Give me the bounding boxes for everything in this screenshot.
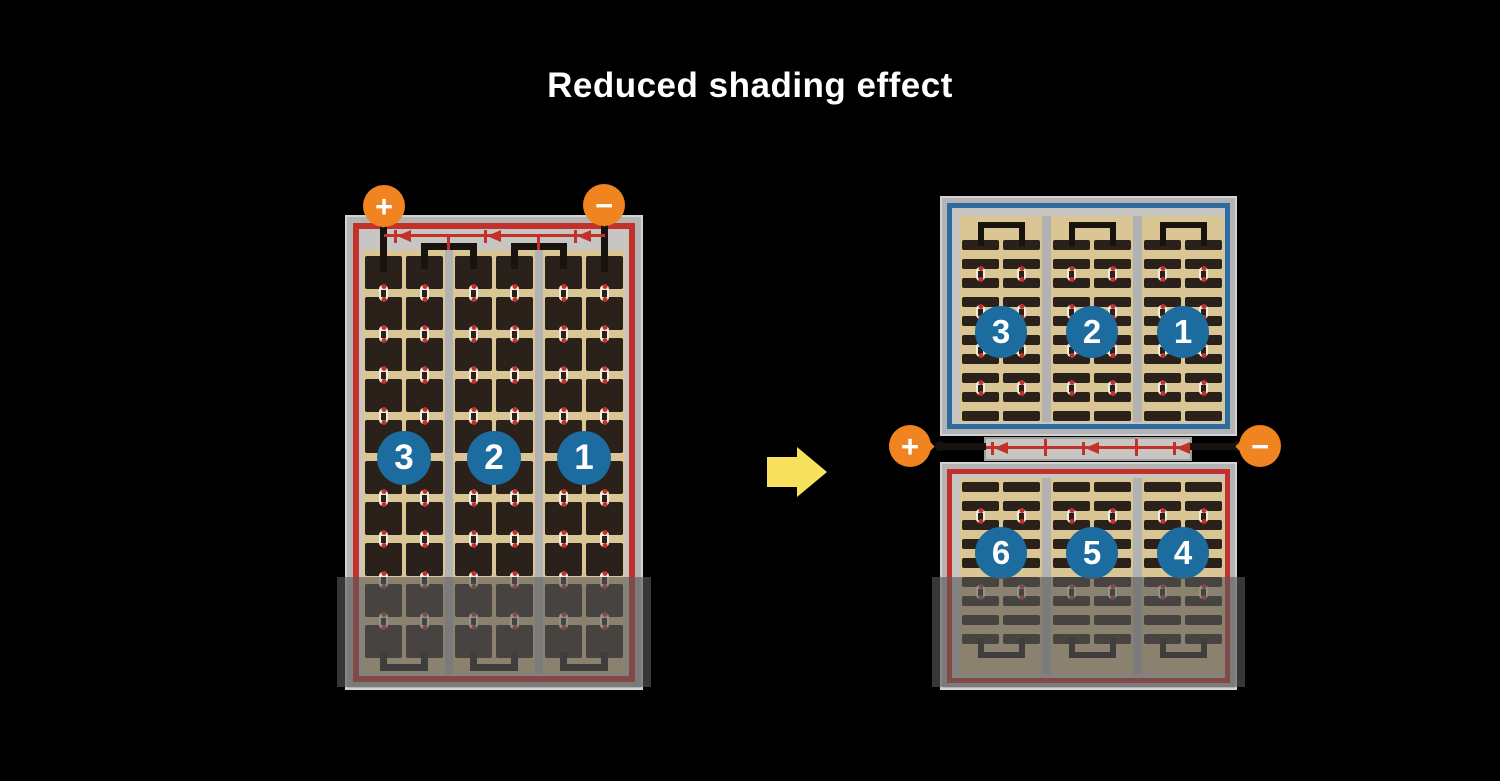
string-number: 6 <box>992 534 1010 572</box>
bypass-diode-icon <box>1082 442 1102 455</box>
string-tap-wire <box>447 235 450 250</box>
string-number: 3 <box>992 313 1010 351</box>
string-number-circle: 3 <box>377 431 431 485</box>
minus-terminal-lead <box>601 220 608 272</box>
string-tap-wire <box>1135 439 1138 456</box>
plus-terminal: + <box>889 425 931 467</box>
minus-terminal: − <box>1239 425 1281 467</box>
plus-sign: + <box>375 191 393 222</box>
wire-bead <box>935 441 945 451</box>
plus-sign: + <box>901 431 919 462</box>
plus-terminal: + <box>363 185 405 227</box>
string-number-circle: 5 <box>1066 527 1118 579</box>
bypass-diode-icon <box>484 230 504 243</box>
string-number-circle: 1 <box>557 431 611 485</box>
bypass-diode-icon <box>574 230 594 243</box>
minus-sign: − <box>595 190 613 221</box>
diode-arrow <box>1176 442 1190 454</box>
string-tap-wire <box>1044 439 1047 456</box>
minus-terminal: − <box>583 184 625 226</box>
diode-arrow <box>577 230 591 242</box>
minus-sign: − <box>1251 431 1269 462</box>
diode-arrow <box>487 230 501 242</box>
diode-arrow <box>994 442 1008 454</box>
bypass-diode-icon <box>394 230 414 243</box>
diagram-stage: Reduced shading effect + − 3 2 1 <box>0 0 1500 781</box>
flow-arrow-icon <box>767 447 827 497</box>
string-number-circle: 3 <box>975 306 1027 358</box>
string-number-circle: 1 <box>1157 306 1209 358</box>
string-number: 4 <box>1174 534 1192 572</box>
string-number-circle: 6 <box>975 527 1027 579</box>
string-number: 1 <box>1174 313 1192 351</box>
diode-arrow <box>397 230 411 242</box>
diagram-title: Reduced shading effect <box>0 66 1500 106</box>
string-tap-wire <box>537 235 540 250</box>
string-number: 5 <box>1083 534 1101 572</box>
bypass-diode-icon <box>991 442 1011 455</box>
string-number-circle: 4 <box>1157 527 1209 579</box>
string-number: 2 <box>1083 313 1101 351</box>
string-number: 2 <box>484 438 503 478</box>
string-number-circle: 2 <box>467 431 521 485</box>
plus-terminal-lead <box>380 222 387 272</box>
shading-overlay <box>337 577 651 687</box>
string-number-circle: 2 <box>1066 306 1118 358</box>
shading-overlay <box>932 577 1245 687</box>
string-number: 3 <box>394 438 413 478</box>
diode-arrow <box>1085 442 1099 454</box>
string-number: 1 <box>574 438 593 478</box>
